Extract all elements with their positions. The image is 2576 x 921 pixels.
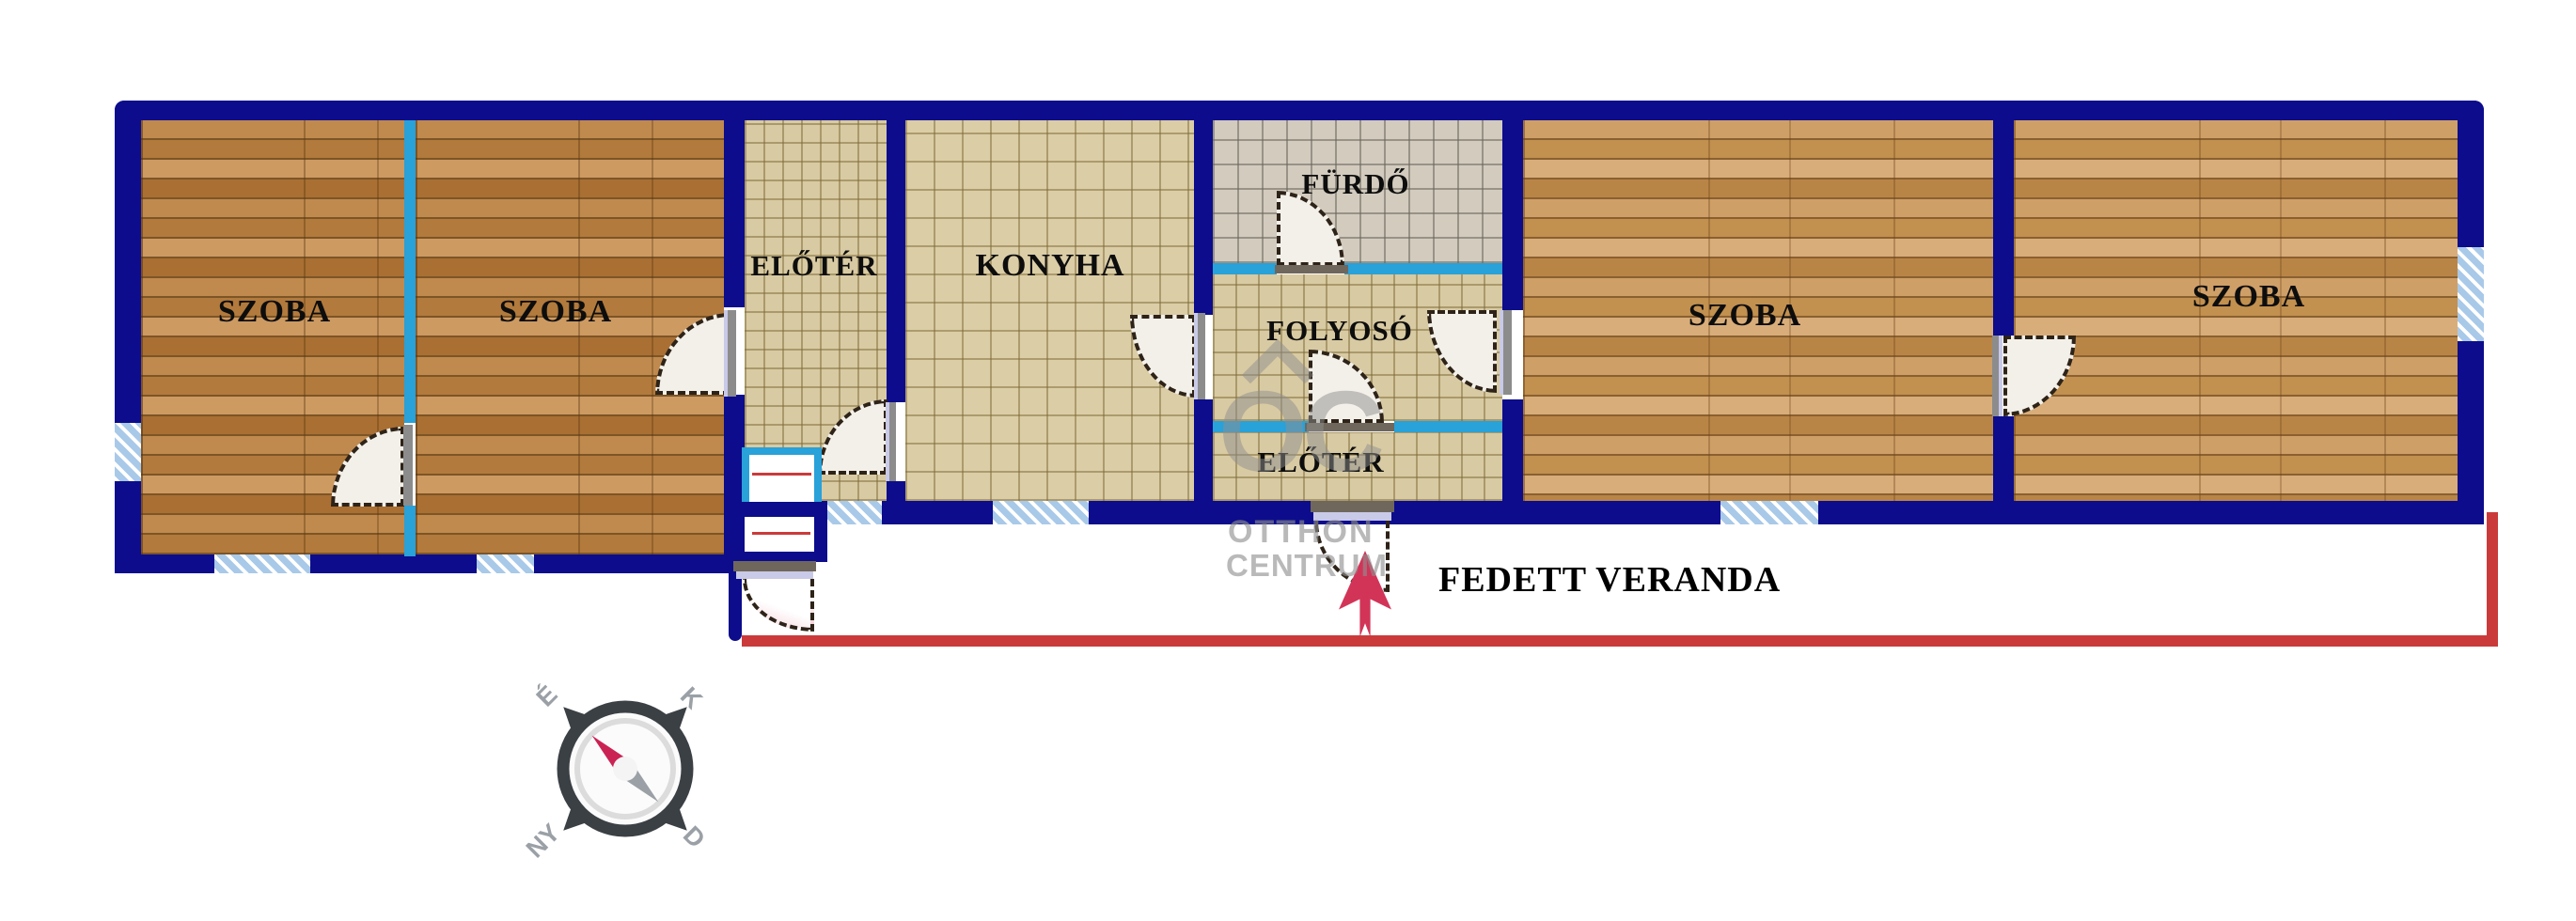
wall-entrance-bay-right: [814, 517, 827, 562]
room-label-szoba-2: SZOBA: [499, 294, 612, 330]
door-sill-furdo: [1275, 265, 1348, 273]
door-jamb-szoba3-szoba4: [1992, 336, 2003, 416]
watermark-line-2: CENTRUM: [1226, 548, 1388, 584]
partition-szoba1-szoba2-lower: [404, 506, 416, 556]
watermark-monogram: OC: [1218, 374, 1379, 489]
wall-bottom-left-block: [115, 554, 743, 573]
step-upper-trim-top: [742, 447, 822, 455]
wall-folyoso-szoba3-upper: [1502, 120, 1523, 310]
door-jamb-szoba2-eloter1: [724, 310, 736, 397]
watermark-line-1: OTTHON: [1228, 514, 1374, 551]
bay-door-swing: [743, 579, 814, 632]
window-szoba1-left-wall: [115, 423, 141, 481]
window-szoba3-bottom: [1720, 501, 1818, 524]
room-label-furdo: FÜRDŐ: [1301, 167, 1409, 201]
door-jamb-konyha-folyoso: [1194, 313, 1205, 399]
room-floor-konyha: [905, 120, 1194, 501]
wall-top: [115, 101, 2484, 120]
partition-furdo-folyoso-right: [1344, 263, 1502, 274]
window-szoba2-bottom: [477, 554, 534, 573]
wall-szoba2-eloter1-upper: [724, 120, 745, 307]
wall-folyoso-szoba3-lower: [1502, 399, 1523, 501]
wall-bottom-right-block: [1502, 501, 2484, 524]
wall-szoba3-szoba4-upper: [1993, 120, 2014, 336]
bay-door-lintel: [733, 561, 816, 571]
window-szoba1-bottom: [214, 554, 310, 573]
wall-konyha-furdo-upper: [1194, 120, 1213, 315]
partition-folyoso-eloter2-right: [1394, 421, 1502, 432]
step-upper-trim-left: [742, 447, 749, 502]
partition-furdo-folyoso-left: [1213, 263, 1277, 274]
window-konyha-bottom: [993, 501, 1089, 524]
door-leaf-szoba1-szoba2: [403, 425, 413, 506]
wall-left: [115, 101, 141, 573]
room-label-konyha: KONYHA: [976, 248, 1125, 284]
wall-szoba3-szoba4-lower: [1993, 416, 2014, 501]
step-upper: [742, 455, 822, 502]
door-jamb-folyoso-szoba3: [1500, 310, 1512, 395]
door-jamb-eloter1-konyha: [886, 402, 896, 481]
bay-door-threshold: [736, 571, 813, 579]
room-label-szoba-3: SZOBA: [1689, 298, 1801, 334]
wall-entrance-bay-bottom: [742, 552, 814, 561]
wall-konyha-furdo-lower: [1194, 399, 1213, 501]
step-upper-trim-right: [814, 447, 822, 502]
veranda-boundary-bottom: [742, 635, 2498, 647]
room-label-szoba-1: SZOBA: [218, 294, 331, 330]
step-upper-nosing: [752, 473, 811, 476]
veranda-boundary-right: [2487, 512, 2498, 647]
room-label-folyoso: FOLYOSÓ: [1266, 314, 1413, 348]
room-label-veranda: FEDETT VERANDA: [1438, 559, 1781, 601]
room-label-eloter-1: ELŐTÉR: [750, 249, 877, 283]
step-lower-nosing: [752, 532, 810, 535]
room-label-szoba-4: SZOBA: [2192, 279, 2305, 315]
floor-plan: SZOBA SZOBA ELŐTÉR KONYHA FÜRDŐ FOLYOSÓ …: [0, 0, 2576, 921]
entrance-door-lintel: [1311, 501, 1394, 512]
wall-eloter1-konyha-upper: [887, 120, 905, 402]
window-eloter1-bottom: [827, 501, 882, 524]
window-szoba4-right-wall: [2458, 247, 2484, 341]
partition-szoba1-szoba2-upper: [404, 120, 416, 423]
wall-eloter1-konyha-lower: [887, 481, 905, 501]
